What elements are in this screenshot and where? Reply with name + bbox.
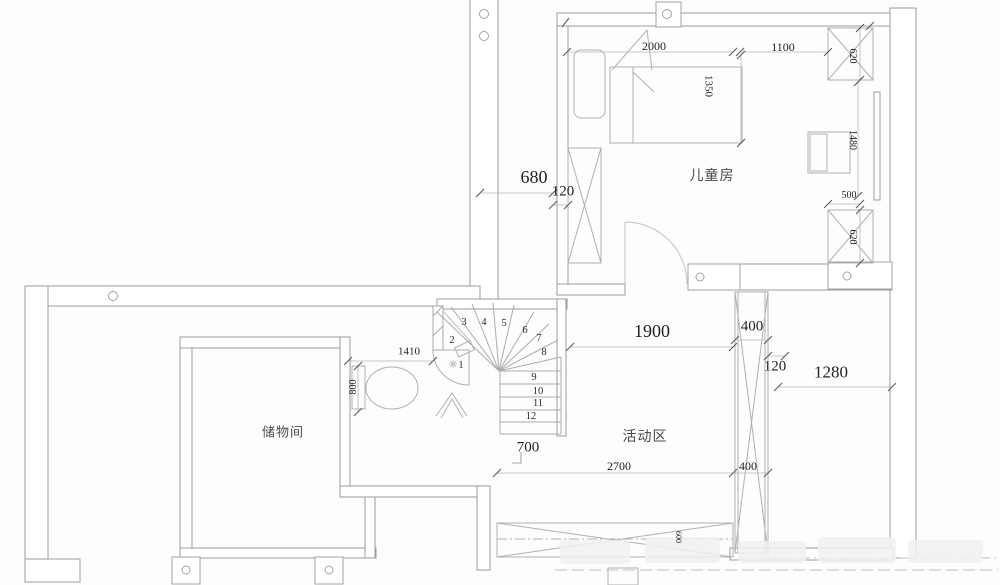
dim-400-bottom: 400 — [739, 460, 757, 472]
dim-800: 800 — [349, 380, 359, 395]
wall-stair-top — [437, 299, 567, 309]
dim-620-bottom: 620 — [847, 230, 857, 245]
dim-1480: 1480 — [847, 130, 857, 150]
dim-700: 700 — [517, 441, 540, 456]
wall-childrens-bottom-left — [557, 284, 625, 295]
wall-left — [25, 286, 48, 582]
walls — [25, 0, 916, 582]
dim-1350: 1350 — [703, 75, 714, 97]
dim-1410: 1410 — [398, 347, 420, 358]
column-marker-icon — [109, 292, 118, 301]
column-marker-icon — [843, 272, 851, 280]
faucet-icon — [455, 341, 475, 357]
dim-2000: 2000 — [642, 40, 666, 52]
stair-step-12: 12 — [526, 412, 537, 423]
dim-600: 600 — [674, 531, 682, 543]
stair-step-10: 10 — [533, 387, 544, 398]
wardrobe-childrens-left — [568, 148, 601, 263]
childrens-room-door — [625, 222, 687, 284]
wall-left-top — [25, 286, 480, 306]
stair-step-3: 3 — [461, 318, 466, 329]
stair-step-6: 6 — [522, 326, 527, 337]
floor-plan-drawing — [0, 0, 1000, 585]
desk — [808, 132, 850, 173]
room-label-storage-room: 储物间 — [262, 427, 304, 440]
dim-680: 680 — [521, 168, 548, 186]
wall-step-vertical — [365, 497, 375, 558]
staircase — [437, 303, 561, 434]
wall-storage-top — [180, 337, 350, 348]
wall-storage-left — [180, 337, 192, 558]
wall-bathroom-bottom — [340, 486, 490, 497]
wall-top — [557, 13, 893, 26]
room-label-childrens-room: 儿童房 — [690, 169, 735, 183]
wall-top-left-bar — [470, 0, 498, 304]
column-marker-icon — [325, 566, 333, 574]
stair-step-4: 4 — [481, 318, 486, 329]
stair-step-11: 11 — [533, 399, 543, 410]
shower-symbol-icon — [441, 399, 463, 418]
watermark-remnant — [560, 537, 983, 564]
toilet — [352, 366, 418, 409]
stair-step-5: 5 — [501, 319, 506, 330]
dim-1900: 1900 — [634, 322, 670, 340]
pillow — [574, 50, 605, 118]
column-marker-icon — [663, 10, 672, 19]
stair-step-7: 7 — [536, 334, 541, 345]
column-marker-icon — [182, 566, 190, 574]
stair-step-1: 1 — [458, 361, 463, 372]
room-label-activity-area: 活动区 — [623, 430, 668, 444]
column-block — [828, 262, 892, 289]
wall-lower-mid — [477, 486, 490, 570]
dim-2700: 2700 — [607, 460, 631, 472]
small-box — [608, 568, 638, 585]
dimension-ticks — [344, 18, 896, 477]
dim-620-top: 620 — [847, 49, 857, 64]
column-marker-icon — [480, 32, 489, 41]
floor-plan: 儿童房 活动区 储物间 2000 1100 1350 620 1480 500 … — [0, 0, 1000, 585]
wall-childrens-left — [557, 26, 568, 288]
wall-storage-bottom — [180, 548, 376, 558]
dim-500: 500 — [842, 191, 857, 201]
wall-right — [890, 8, 916, 558]
dim-400-top: 400 — [741, 320, 764, 335]
column-marker-icon — [696, 273, 704, 281]
drain-marker-icon — [449, 360, 457, 368]
wall-left-foot — [25, 559, 80, 582]
window-line-right — [874, 92, 880, 200]
toilet-bowl — [366, 367, 418, 409]
shower-symbol-icon — [436, 393, 467, 416]
stair-step-2: 2 — [449, 336, 454, 347]
door-swing-arc — [625, 222, 687, 284]
bed-frame — [610, 67, 742, 143]
dim-120-right: 120 — [764, 360, 787, 375]
dim-120-corridor: 120 — [552, 185, 575, 200]
column-marker-icon — [480, 10, 489, 19]
dim-1100: 1100 — [771, 41, 795, 53]
dimension-lines — [348, 28, 892, 473]
stair-step-8: 8 — [541, 348, 546, 359]
stair-step-9: 9 — [531, 373, 536, 384]
dim-1280: 1280 — [814, 364, 848, 381]
